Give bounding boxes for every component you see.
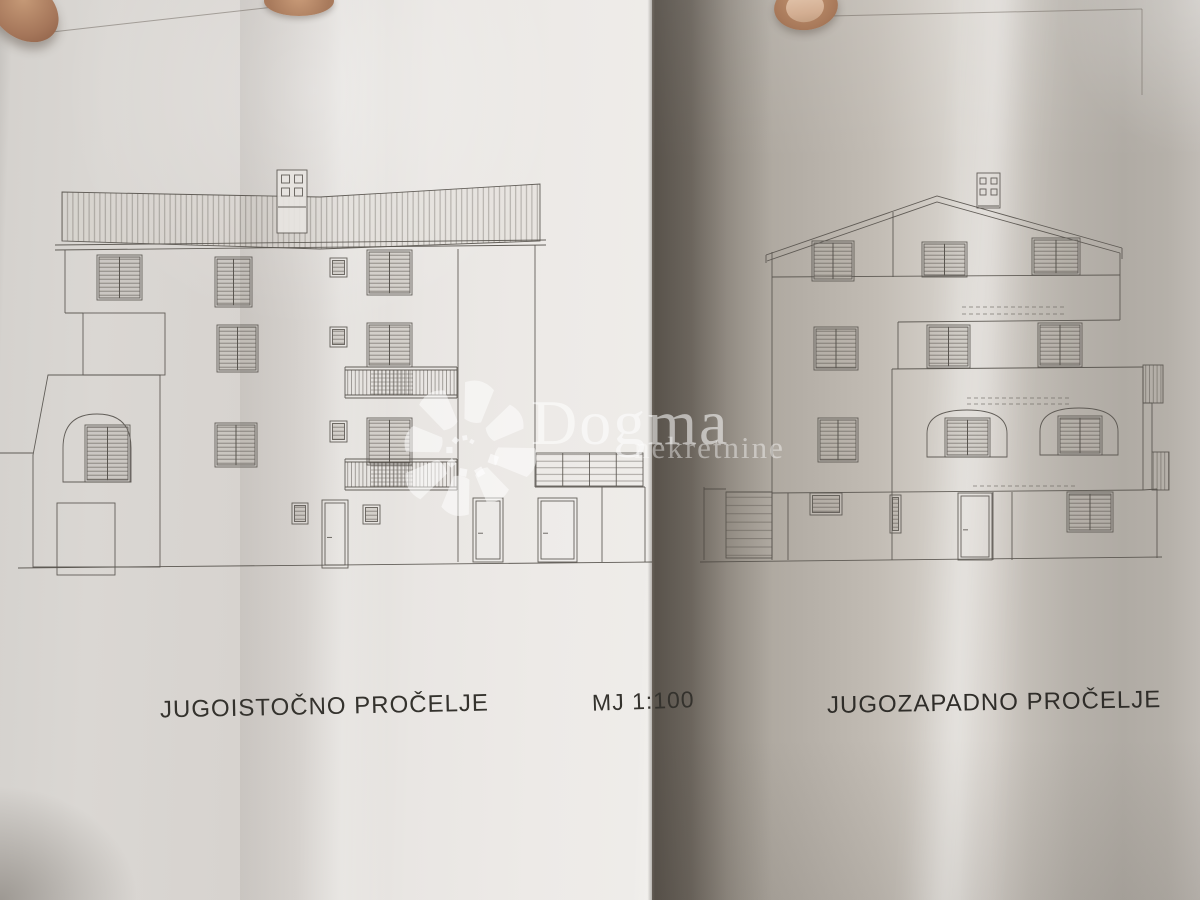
fingernail — [784, 0, 825, 24]
right-elevation-title: JUGOZAPADNO PROČELJE — [827, 686, 1162, 720]
scale-note: MJ 1:100 — [592, 686, 695, 717]
blueprint-photo: JUGOISTOČNO PROČELJE MJ 1:100 JUGOZAPADN… — [0, 0, 1200, 900]
elevation-drawings — [0, 0, 1200, 900]
